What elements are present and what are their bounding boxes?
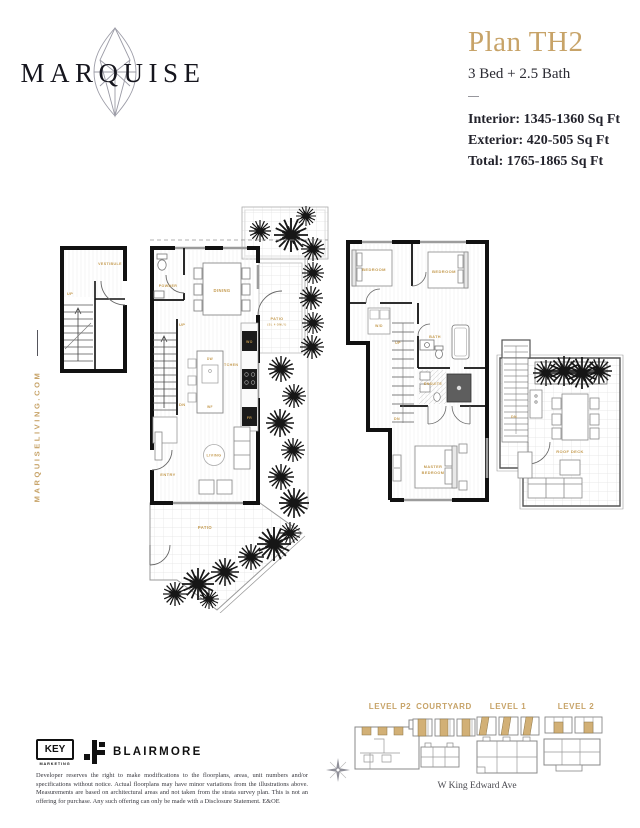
tree-icon xyxy=(301,237,325,261)
key-logo-sub: MARKETING xyxy=(36,762,74,766)
street-label: W King Edward Ave xyxy=(402,781,552,791)
blairmore-logo: BLAIRMORE xyxy=(84,740,202,764)
key-marketing-logo: KEY MARKETING xyxy=(36,739,74,766)
keyplan-level-2: LEVEL 2 xyxy=(542,702,610,780)
room-label-up: UP xyxy=(179,322,185,327)
side-rail-line xyxy=(37,330,38,356)
keyplan-label: COURTYARD xyxy=(412,702,476,711)
spec-total: Total: 1765-1865 Sq Ft xyxy=(468,151,633,172)
room-label-master-1: MASTER xyxy=(424,465,442,469)
level2-floorplan: BEDROOM BEDROOM W/D UP DN BATH ENSUITE xyxy=(340,228,495,528)
room-label-bath: BATH xyxy=(429,335,441,339)
room-label-dining: DINING xyxy=(213,288,230,293)
plan-title: Plan TH2 xyxy=(468,26,633,59)
label-wf: WF xyxy=(207,405,213,409)
room-label-patio-upper-note: (SL 4 ONLY) xyxy=(267,323,286,327)
room-label-powder: POWDER xyxy=(159,284,178,288)
keyplan-courtyard-map xyxy=(412,715,476,775)
laundry: W/D xyxy=(368,308,390,334)
room-label-living: LIVING xyxy=(206,454,221,458)
brand-wordmark: MARQUISE xyxy=(20,58,205,88)
bedroom-left: BEDROOM xyxy=(352,250,392,286)
room-label-roof-deck: ROOF DECK xyxy=(556,449,584,454)
room-label-dn: DN xyxy=(179,402,186,407)
roof-deck-plan: DN ROOF DECK xyxy=(490,338,630,513)
room-label-patio-lower: PATIO xyxy=(198,525,213,530)
keyplan-level-1-map xyxy=(476,715,540,779)
room-label-vestibule: VESTIBULE xyxy=(98,262,122,266)
floorplan-sheet: { "colors": {"accent_gold": "#C7A368", "… xyxy=(0,0,640,828)
dining-area: DINING xyxy=(194,263,250,315)
room-label-dn: DN xyxy=(394,417,400,421)
label-dw: DW xyxy=(207,357,213,361)
spec-interior: Interior: 1345-1360 Sq Ft xyxy=(468,109,633,130)
room-label-master-2: BEDROOM xyxy=(422,471,445,475)
room-label-wd: W/D xyxy=(375,324,383,328)
key-logo-box: KEY xyxy=(36,739,74,760)
plan-configuration: 3 Bed + 2.5 Bath xyxy=(468,66,633,83)
keyplan-courtyard: COURTYARD xyxy=(412,702,476,780)
blairmore-wordmark: BLAIRMORE xyxy=(113,746,202,758)
room-label-up: UP xyxy=(395,341,401,345)
spec-exterior: Exterior: 420-505 Sq Ft xyxy=(468,130,633,151)
room-label-dn: DN xyxy=(511,415,517,419)
keyplan-label: LEVEL 1 xyxy=(476,702,540,711)
upper-patio: PATIO (SL 4 ONLY) xyxy=(259,258,308,355)
label-wo: WO xyxy=(246,340,253,344)
keyplan-level-2-map xyxy=(542,715,606,775)
room-label-ensuite: ENSUITE xyxy=(424,382,443,386)
vestibule-plan: VESTIBULE UP xyxy=(60,246,127,373)
bedroom-right: BEDROOM xyxy=(428,252,468,288)
keyplan-level-1: LEVEL 1 xyxy=(476,702,540,784)
blairmore-icon xyxy=(84,740,105,764)
website-vertical-text: MARQUISELIVING.COM xyxy=(33,362,42,512)
room-label-patio-upper: PATIO xyxy=(270,317,283,321)
header-divider xyxy=(468,96,479,97)
brand-logo: MARQUISE xyxy=(18,16,208,120)
plan-header: Plan TH2 3 Bed + 2.5 Bath Interior: 1345… xyxy=(468,26,633,172)
room-label-bedroom-right: BEDROOM xyxy=(432,269,456,274)
room-label-bedroom-left: BEDROOM xyxy=(362,267,386,272)
ensuite: ENSUITE xyxy=(419,370,471,404)
room-label-vestibule-up: UP xyxy=(67,291,73,296)
disclaimer-text: Developer reserves the right to make mod… xyxy=(36,772,308,807)
room-label-entry: ENTRY xyxy=(160,472,175,477)
compass-rose-icon xyxy=(325,757,351,783)
keyplan-label: LEVEL 2 xyxy=(542,702,610,711)
tree-icon xyxy=(296,206,316,226)
level1-floorplan: VESTIBULE UP PATIO (SL 4 ONLY) PATIO POW… xyxy=(55,203,330,613)
label-fr: FR xyxy=(247,416,252,420)
